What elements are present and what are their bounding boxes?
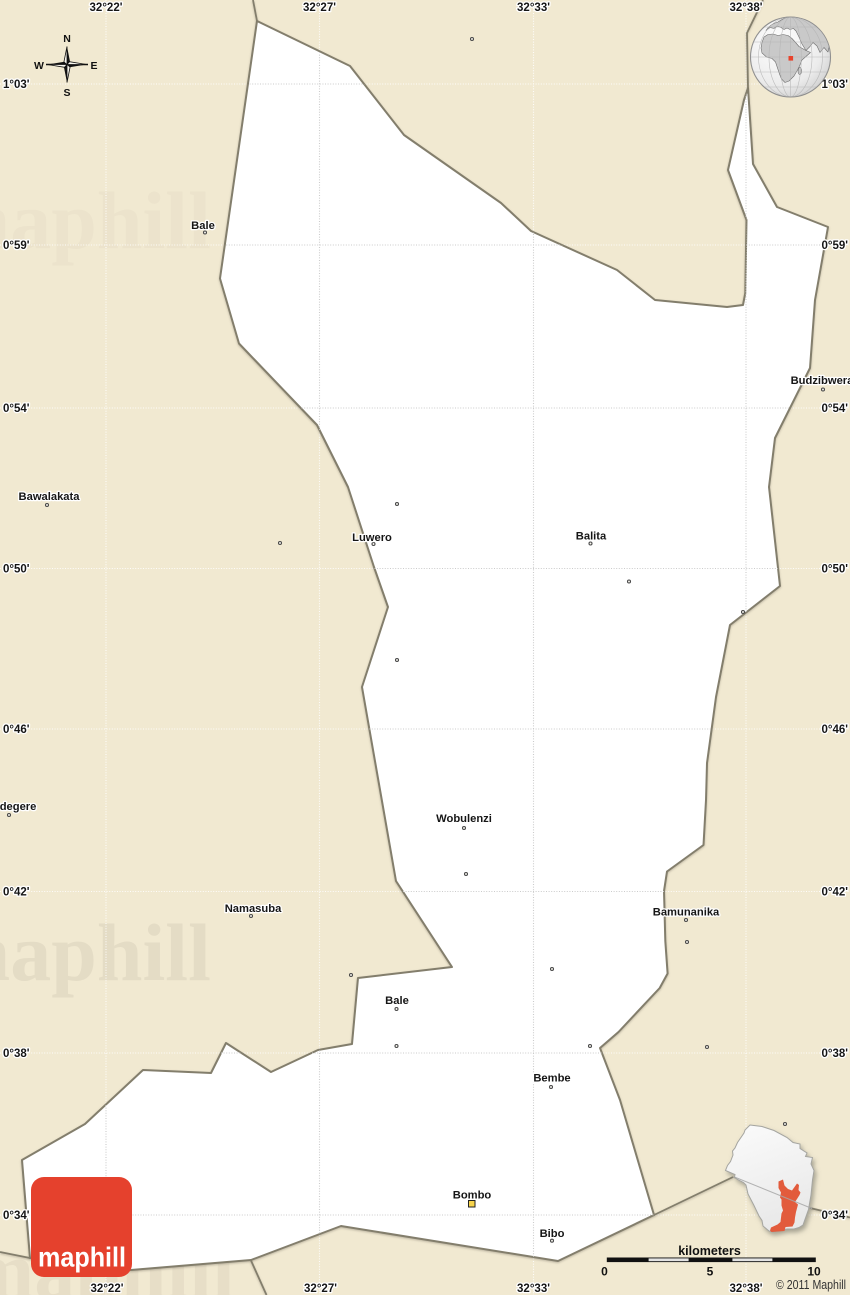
svg-text:32°27': 32°27' <box>304 1283 337 1295</box>
svg-text:0°34': 0°34' <box>821 1210 848 1222</box>
svg-text:5: 5 <box>707 1265 714 1279</box>
svg-text:32°38': 32°38' <box>730 2 763 14</box>
svg-text:maphill: maphill <box>0 175 211 266</box>
svg-text:32°33': 32°33' <box>517 2 550 14</box>
svg-text:Ndegere: Ndegere <box>0 801 36 813</box>
svg-text:Bombo: Bombo <box>453 1190 492 1202</box>
svg-text:0: 0 <box>601 1265 608 1279</box>
svg-text:maphill: maphill <box>0 907 211 998</box>
svg-text:0°50': 0°50' <box>3 564 30 576</box>
svg-text:32°22': 32°22' <box>90 2 123 14</box>
svg-text:Bale: Bale <box>385 995 409 1007</box>
svg-text:0°59': 0°59' <box>3 240 30 252</box>
svg-text:0°42': 0°42' <box>3 887 30 899</box>
svg-text:32°33': 32°33' <box>517 1283 550 1295</box>
svg-text:0°34': 0°34' <box>3 1210 30 1222</box>
svg-text:Wobulenzi: Wobulenzi <box>436 813 492 825</box>
svg-text:0°50': 0°50' <box>821 564 848 576</box>
svg-text:0°59': 0°59' <box>821 240 848 252</box>
svg-text:Bale: Bale <box>191 220 215 232</box>
svg-text:32°38': 32°38' <box>730 1283 763 1295</box>
svg-text:32°27': 32°27' <box>303 2 336 14</box>
svg-text:E: E <box>90 60 97 72</box>
svg-text:Bawalakata: Bawalakata <box>19 491 81 503</box>
svg-text:10: 10 <box>807 1265 821 1279</box>
svg-text:Namasuba: Namasuba <box>225 903 282 915</box>
svg-text:1°03': 1°03' <box>821 79 848 91</box>
svg-text:32°22': 32°22' <box>91 1283 124 1295</box>
svg-text:N: N <box>63 33 71 45</box>
svg-text:Bembe: Bembe <box>533 1073 570 1085</box>
svg-text:maphill: maphill <box>38 1242 126 1273</box>
svg-text:© 2011 Maphill: © 2011 Maphill <box>776 1278 846 1292</box>
svg-text:0°46': 0°46' <box>3 724 30 736</box>
svg-text:0°38': 0°38' <box>3 1048 30 1060</box>
svg-text:0°38': 0°38' <box>821 1048 848 1060</box>
svg-text:W: W <box>34 60 44 72</box>
svg-text:0°54': 0°54' <box>3 403 30 415</box>
svg-text:Bibo: Bibo <box>540 1228 565 1240</box>
svg-text:1°03': 1°03' <box>3 79 30 91</box>
svg-text:kilometers: kilometers <box>678 1244 741 1258</box>
svg-text:S: S <box>63 87 70 99</box>
svg-text:0°54': 0°54' <box>821 403 848 415</box>
svg-text:0°42': 0°42' <box>821 887 848 899</box>
svg-text:Bamunanika: Bamunanika <box>653 907 720 919</box>
svg-text:Budzibwera: Budzibwera <box>791 375 850 387</box>
svg-text:Balita: Balita <box>576 531 607 543</box>
svg-text:0°46': 0°46' <box>821 724 848 736</box>
svg-text:Luwero: Luwero <box>352 532 392 544</box>
